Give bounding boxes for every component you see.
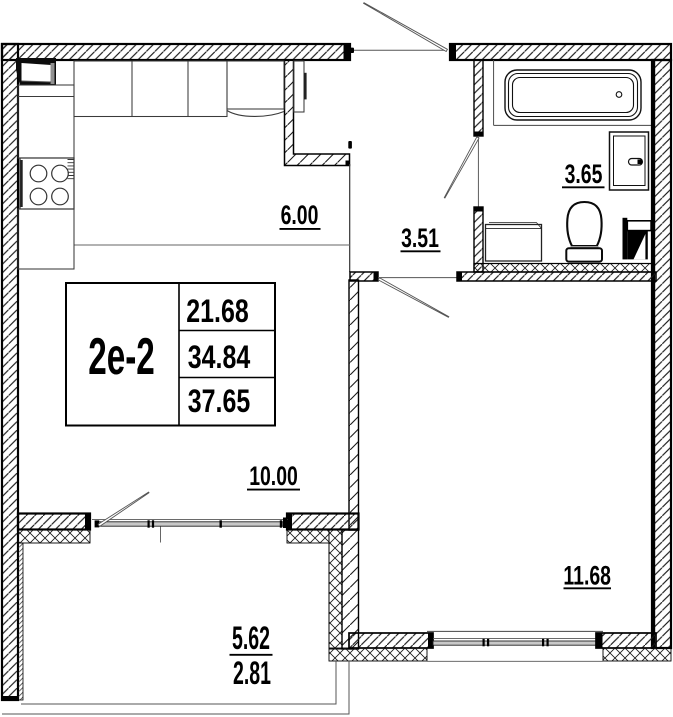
svg-text:34.84: 34.84	[188, 340, 250, 376]
svg-text:37.65: 37.65	[188, 384, 250, 420]
svg-text:21.68: 21.68	[186, 294, 248, 330]
svg-text:10.00: 10.00	[249, 461, 298, 491]
svg-text:6.00: 6.00	[281, 200, 319, 230]
svg-text:2е-2: 2е-2	[88, 328, 155, 386]
svg-text:11.68: 11.68	[563, 560, 611, 590]
svg-text:3.65: 3.65	[565, 159, 603, 189]
svg-text:2.81: 2.81	[233, 655, 271, 691]
svg-text:3.51: 3.51	[401, 223, 439, 253]
svg-text:5.62: 5.62	[232, 620, 270, 656]
